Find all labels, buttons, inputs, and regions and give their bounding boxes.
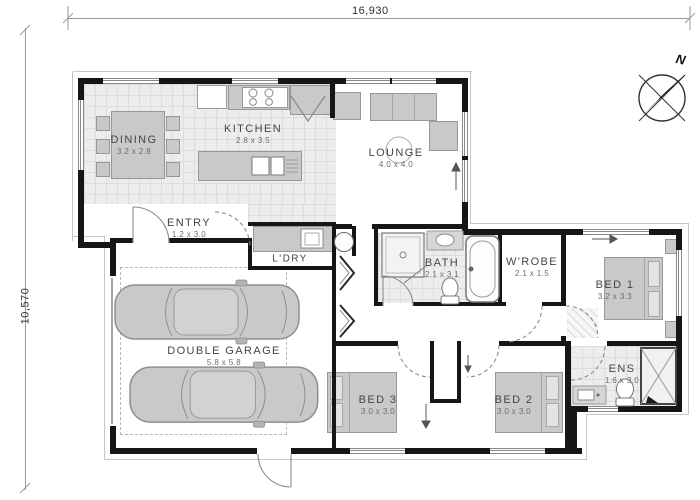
room-size: 1.2 x 3.0: [167, 230, 211, 239]
cladding-line: [470, 71, 471, 224]
bed1-top-window: [583, 229, 649, 235]
room-size: 3.2 x 3.3: [596, 292, 635, 301]
cladding-line: [72, 236, 105, 237]
room-label-entry: ENTRY 1.2 x 3.0: [167, 217, 211, 239]
entry-garage-wall-a: [110, 238, 133, 243]
room-label-lounge: LOUNGE 4.0 x 4.0: [369, 147, 424, 169]
room-size: 3.0 x 3.0: [495, 407, 534, 416]
lounge-right-wall: [462, 78, 468, 235]
room-name: L'DRY: [272, 253, 307, 265]
room-size: 2.8 x 3.5: [224, 136, 282, 145]
room-label-bed1: BED 1 3.2 x 3.3: [596, 279, 635, 301]
cladding-line: [104, 236, 105, 460]
armchair: [333, 92, 361, 120]
room-name: BED 3: [359, 394, 398, 407]
wardrobe-bed1-wall: [561, 229, 566, 306]
room-label-laundry: L'DRY: [272, 253, 307, 265]
bottom-wing-top-wall-c: [499, 341, 565, 346]
garage-front-wall-upper: [110, 242, 116, 276]
cladding-line: [72, 71, 73, 241]
room-name: ENS: [605, 363, 639, 376]
room-label-kitchen: KITCHEN 2.8 x 3.5: [224, 123, 282, 145]
garage-right-wall: [332, 224, 336, 450]
lounge-side-window-a: [462, 112, 468, 156]
pantry-wall: [330, 84, 335, 118]
kitchen-laundry-wall: [248, 222, 336, 226]
room-size: 2.1 x 3.1: [425, 270, 459, 279]
left-dimension-label: 10,570: [19, 288, 31, 325]
room-label-wardrobe: W'ROBE 2.1 x 1.5: [506, 256, 558, 278]
bed2-blanket-line: [541, 372, 542, 433]
bed1-side-window: [676, 250, 682, 316]
room-size: 2.1 x 1.5: [506, 269, 558, 278]
bath-bottom-wall-b: [413, 302, 502, 306]
room-label-bath: BATH 2.1 x 3.1: [425, 257, 459, 279]
bed1-vestibule-hatch: [567, 308, 598, 338]
cladding-line: [104, 459, 587, 460]
right-wing-top-wall: [462, 229, 682, 235]
dining-chair: [166, 139, 180, 154]
kitchen-appliance: [197, 85, 227, 109]
cladding-line: [586, 414, 587, 460]
room-name: LOUNGE: [369, 147, 424, 160]
sofa: [370, 93, 437, 121]
bath-bottom-wall-a: [374, 302, 383, 306]
bed1-pillow: [648, 261, 660, 287]
exterior-wall-step-right: [571, 406, 577, 454]
bed1-blanket-line: [644, 257, 645, 320]
room-size: 1.6 x 3.0: [605, 376, 639, 385]
room-name: BATH: [425, 257, 459, 270]
dining-window: [103, 78, 159, 84]
cladding-line: [470, 223, 689, 224]
dining-chair: [96, 162, 110, 177]
lounge-bottom-wall-b: [372, 224, 462, 229]
room-name: W'ROBE: [506, 256, 558, 269]
room-name: DINING: [111, 134, 158, 147]
dining-chair: [166, 162, 180, 177]
compass-north-label: N: [675, 51, 687, 68]
cladding-line: [74, 71, 472, 72]
laundry-bottom-wall: [248, 266, 336, 270]
room-name: KITCHEN: [224, 123, 282, 136]
bed3-window: [350, 448, 405, 454]
garage-door-panel: [111, 278, 113, 424]
cladding-line: [688, 223, 689, 415]
bed2-ensuite-wall: [565, 341, 571, 454]
bed2-window: [490, 448, 545, 454]
room-size: 3.2 x 2.8: [111, 147, 158, 156]
room-size: 3.0 x 3.0: [359, 407, 398, 416]
ensuite-top-wall: [607, 341, 682, 346]
dining-chair: [96, 139, 110, 154]
sofa-cushion-line: [414, 93, 415, 121]
closet-right-wall: [457, 341, 461, 403]
front-door-opening: [257, 448, 291, 454]
sofa-chaise: [429, 121, 458, 151]
room-label-garage: DOUBLE GARAGE 5.8 x 5.8: [167, 345, 281, 367]
sofa-cushion-line: [392, 93, 393, 121]
cladding-line: [586, 414, 689, 415]
bed1-pillow: [648, 291, 660, 317]
compass-icon: [639, 75, 685, 121]
stove-cooktop: [242, 87, 288, 108]
dining-chair: [166, 116, 180, 131]
ensuite-window: [588, 406, 618, 412]
laundry-bench: [253, 226, 336, 252]
bottom-wing-top-wall-a: [332, 341, 354, 346]
dining-chair: [96, 116, 110, 131]
room-name: BED 1: [596, 279, 635, 292]
kitchen-island: [198, 151, 302, 181]
lounge-window-b: [392, 78, 436, 84]
top-dimension-label: 16,930: [352, 5, 389, 17]
room-name: BED 2: [495, 394, 534, 407]
lounge-side-window-b: [462, 160, 468, 202]
bath-wardrobe-wall: [498, 229, 502, 306]
room-size: 5.8 x 5.8: [167, 358, 281, 367]
bed2-pillow: [546, 376, 559, 400]
hot-water-cylinder: [335, 233, 354, 252]
room-label-ensuite: ENS 1.6 x 3.0: [605, 363, 639, 385]
bed3-blanket-line: [349, 372, 350, 433]
linen-closet-doors: [340, 256, 354, 337]
room-label-bed3: BED 3 3.0 x 3.0: [359, 394, 398, 416]
closet-left-wall: [430, 341, 434, 403]
cylinder-nook-wall: [352, 226, 356, 256]
dining-side-window: [78, 100, 84, 170]
left-dimension-line: [25, 28, 26, 490]
kitchen-window: [232, 78, 278, 84]
corner-pantry: [290, 85, 332, 115]
room-label-bed2: BED 2 3.0 x 3.0: [495, 394, 534, 416]
closet-bottom-wall: [430, 399, 461, 403]
room-name: DOUBLE GARAGE: [167, 345, 281, 358]
bottom-wing-top-wall-b: [354, 341, 398, 346]
room-size: 4.0 x 4.0: [369, 160, 424, 169]
bath-left-wall: [374, 229, 378, 306]
lounge-window-a: [346, 78, 390, 84]
bed2-pillow: [546, 403, 559, 427]
floor-plan: 16,930 10,570: [0, 0, 700, 500]
room-name: ENTRY: [167, 217, 211, 230]
wardrobe-bottom-wall-a: [498, 302, 506, 306]
top-dimension-line: [68, 18, 690, 19]
room-label-dining: DINING 3.2 x 2.8: [111, 134, 158, 156]
